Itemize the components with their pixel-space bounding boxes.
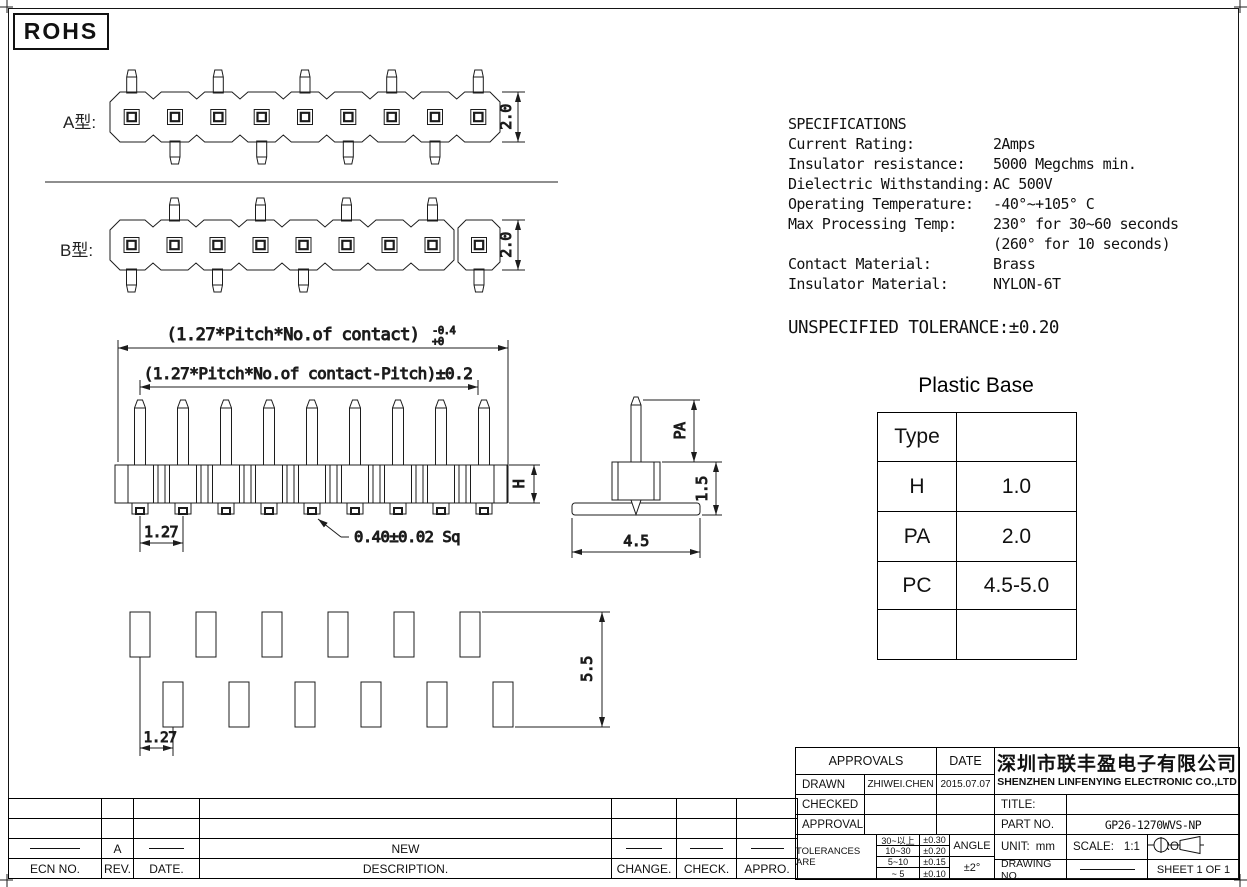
rev-appro-dash [736, 838, 797, 858]
approvals-header: APPROVALS [796, 748, 936, 774]
rev-header-description: DESCRIPTION. [199, 858, 611, 878]
pb-cell-empty-value [956, 609, 1076, 659]
tol-val-0: ±0.30 [919, 834, 949, 845]
spec-row: Insulator Material:NYLON-6T [788, 274, 1247, 294]
pb-cell-h-value: 1.0 [956, 461, 1076, 511]
checked-date [936, 794, 994, 814]
angle-tolerance: ±2° [949, 856, 994, 879]
pb-cell-pc-label: PC [878, 561, 956, 609]
specifications-block: SPECIFICATIONS Current Rating:2Amps Insu… [788, 114, 1247, 294]
pb-cell-pa-label: PA [878, 511, 956, 561]
side-view-base [115, 465, 507, 503]
side-view-pins [135, 400, 490, 465]
rev-date-dash [133, 838, 199, 858]
rev-cell [199, 818, 611, 838]
plastic-base-title: Plastic Base [877, 374, 1075, 398]
spec-label: Dielectric Withstanding: [788, 174, 993, 194]
title-label: TITLE: [994, 794, 1066, 814]
rev-check-dash [676, 838, 736, 858]
date-header: DATE [936, 748, 994, 774]
rev-header-change: CHANGE. [611, 858, 676, 878]
type-b-end-block [458, 220, 500, 270]
dim-total-tol-lower: +0 [432, 336, 444, 348]
checked-label: CHECKED [796, 794, 864, 814]
type-b-pins [124, 238, 487, 253]
title-block: APPROVALS DATE DRAWN ZHIWEI.CHEN 2015.07… [795, 747, 1240, 880]
approvals-label: APPROVALS [796, 814, 864, 834]
rev-header-appro: APPRO. [736, 858, 797, 878]
spec-label: Operating Temperature: [788, 194, 993, 214]
dim-total-length-label: (1.27*Pitch*No.of contact) [166, 325, 419, 345]
drawing-no-label: DRAWING NO. [994, 859, 1066, 879]
rev-header-date: DATE. [133, 858, 199, 878]
pb-cell-h-label: H [878, 461, 956, 511]
dim-base-th-label: 1.5 [693, 476, 711, 502]
rev-change-dash [611, 838, 676, 858]
scale-label: SCALE: [1073, 841, 1114, 853]
scale-value: 1:1 [1124, 841, 1140, 853]
rev-header-ecn: ECN NO. [9, 858, 101, 878]
scale-cell: SCALE: 1:1 [1066, 834, 1147, 859]
side-view: H 1.27 0.40±0.02 Sq [115, 400, 540, 552]
rev-cell [133, 799, 199, 818]
pb-cell-type-label: Type [878, 413, 956, 461]
spec-value: 5000 Megchms min. [993, 154, 1136, 174]
unit-label: UNIT: [1001, 841, 1030, 853]
spec-label: Insulator Material: [788, 274, 993, 294]
specifications-title: SPECIFICATIONS [788, 114, 1247, 134]
company-name-en: SHENZHEN LINFENYING ELECTRONIC CO.,LTD [997, 776, 1237, 789]
spec-label: Insulator resistance: [788, 154, 993, 174]
spec-label: Current Rating: [788, 134, 993, 154]
spec-row: (260° for 10 seconds) [788, 234, 1247, 254]
tol-val-2: ±0.15 [919, 856, 949, 867]
spec-value: (260° for 10 seconds) [993, 234, 1170, 254]
spec-label [788, 234, 993, 254]
spec-label: Max Processing Temp: [788, 214, 993, 234]
approvals-name [864, 814, 936, 834]
part-no-label: PART NO. [994, 814, 1066, 834]
spec-row: Contact Material:Brass [788, 254, 1247, 274]
rev-header-rev: REV. [101, 858, 133, 878]
dim-pad-span-label: 5.5 [578, 656, 596, 682]
spec-row: Dielectric Withstanding:AC 500V [788, 174, 1247, 194]
type-b-body [110, 220, 454, 270]
unspecified-tolerance-note: UNSPECIFIED TOLERANCE:±0.20 [788, 318, 1059, 338]
rev-cell [736, 799, 797, 818]
third-angle-projection-icon [1148, 835, 1204, 855]
type-a-pins [124, 110, 486, 125]
rev-entry-rev: A [101, 838, 133, 858]
type-b-pegs [127, 198, 485, 292]
dim-body-h-label: H [510, 479, 528, 488]
engineering-drawing-page: { "badge": { "rohs": "ROHS" }, "views": … [0, 0, 1247, 887]
pb-cell-pc-value: 4.5-5.0 [956, 561, 1076, 609]
spec-row: Current Rating:2Amps [788, 134, 1247, 154]
approvals-date [936, 814, 994, 834]
tol-range-3: ~ 5 [876, 867, 919, 879]
end-view-block [612, 462, 660, 500]
end-view-block-walls [618, 462, 654, 500]
spec-row: Operating Temperature:-40°~+105° C [788, 194, 1247, 214]
dim-span-length-label: (1.27*Pitch*No.of contact-Pitch)±0.2 [144, 364, 473, 383]
footprint-bottom-pads [163, 682, 513, 727]
drawn-name: ZHIWEI.CHEN [864, 774, 936, 794]
rev-cell [9, 799, 101, 818]
tol-range-1: 10~30 [876, 845, 919, 856]
part-no-value: GP26-1270WVS-NP [1066, 814, 1239, 834]
leader-line [318, 519, 341, 537]
spec-label: Contact Material: [788, 254, 993, 274]
rev-cell [676, 818, 736, 838]
revision-table: A NEW ECN NO. REV. DATE. DESCRIPTION. CH… [8, 798, 798, 879]
dim-pin-square-label: 0.40±0.02 Sq [354, 528, 460, 546]
end-view-pin [631, 397, 641, 462]
unit-value: mm [1036, 841, 1055, 853]
length-dimensions: (1.27*Pitch*No.of contact) -0.4 +0 (1.27… [118, 325, 508, 503]
footprint-view: 5.5 1.27 [130, 612, 610, 756]
tol-val-1: ±0.20 [919, 845, 949, 856]
tol-range-2: 5~10 [876, 856, 919, 867]
base-segment-lines [128, 465, 494, 503]
type-b-view: 2.0 [110, 198, 525, 292]
spec-value: -40°~+105° C [993, 194, 1094, 214]
spec-value: NYLON-6T [993, 274, 1060, 294]
type-a-view: 2.0 [110, 70, 525, 164]
spec-value: AC 500V [993, 174, 1052, 194]
title-value [1066, 794, 1239, 814]
tol-range-0: 30~以上 [876, 834, 919, 845]
rev-cell [199, 799, 611, 818]
checked-name [864, 794, 936, 814]
tolerances-label: TOLERANCES ARE [796, 834, 876, 879]
rev-ecn-dash [9, 838, 101, 858]
tol-val-3: ±0.10 [919, 867, 949, 879]
company-name-cn: 深圳市联丰盈电子有限公司 [997, 753, 1237, 777]
rev-cell [133, 818, 199, 838]
rev-cell [101, 818, 133, 838]
spec-row: Insulator resistance:5000 Megchms min. [788, 154, 1247, 174]
drawing-no-value-dash [1066, 859, 1147, 879]
rev-entry-description: NEW [199, 838, 611, 858]
angle-label: ANGLE [949, 834, 994, 856]
rev-cell [736, 818, 797, 838]
unit-cell: UNIT: mm [994, 834, 1066, 859]
rev-cell [611, 818, 676, 838]
footprint-top-pads [130, 612, 480, 657]
spec-value: Brass [993, 254, 1035, 274]
rev-cell [9, 818, 101, 838]
pb-cell-pa-value: 2.0 [956, 511, 1076, 561]
type-a-body [110, 92, 500, 142]
dim-b-height-label: 2.0 [497, 232, 515, 258]
dim-a-height-label: 2.0 [497, 104, 515, 130]
dim-pa-label: PA [671, 422, 689, 440]
pb-cell-type-value [956, 413, 1076, 461]
sheet-label: SHEET 1 OF 1 [1147, 859, 1239, 879]
rev-cell [611, 799, 676, 818]
company-cell: 深圳市联丰盈电子有限公司 SHENZHEN LINFENYING ELECTRO… [994, 748, 1239, 794]
plastic-base-table: Type H 1.0 PA 2.0 PC 4.5-5.0 [877, 412, 1077, 660]
spec-row: Max Processing Temp:230° for 30~60 secon… [788, 214, 1247, 234]
drawn-label: DRAWN [796, 774, 864, 794]
spec-value: 230° for 30~60 seconds [993, 214, 1178, 234]
dim-base-w-label: 4.5 [623, 532, 649, 550]
dim-pitch-label: 1.27 [144, 523, 178, 541]
rev-cell [101, 799, 133, 818]
projection-cell: PROJ: [1147, 834, 1239, 859]
rev-header-check: CHECK. [676, 858, 736, 878]
end-view: PA 1.5 4.5 [572, 397, 722, 558]
rev-cell [676, 799, 736, 818]
side-view-feet [132, 503, 492, 514]
drawn-date: 2015.07.07 [936, 774, 994, 794]
spec-value: 2Amps [993, 134, 1035, 154]
pb-cell-empty-label [878, 609, 956, 659]
end-view-pin-tip [631, 500, 641, 515]
dim-pad-pitch-label: 1.27 [144, 730, 177, 746]
